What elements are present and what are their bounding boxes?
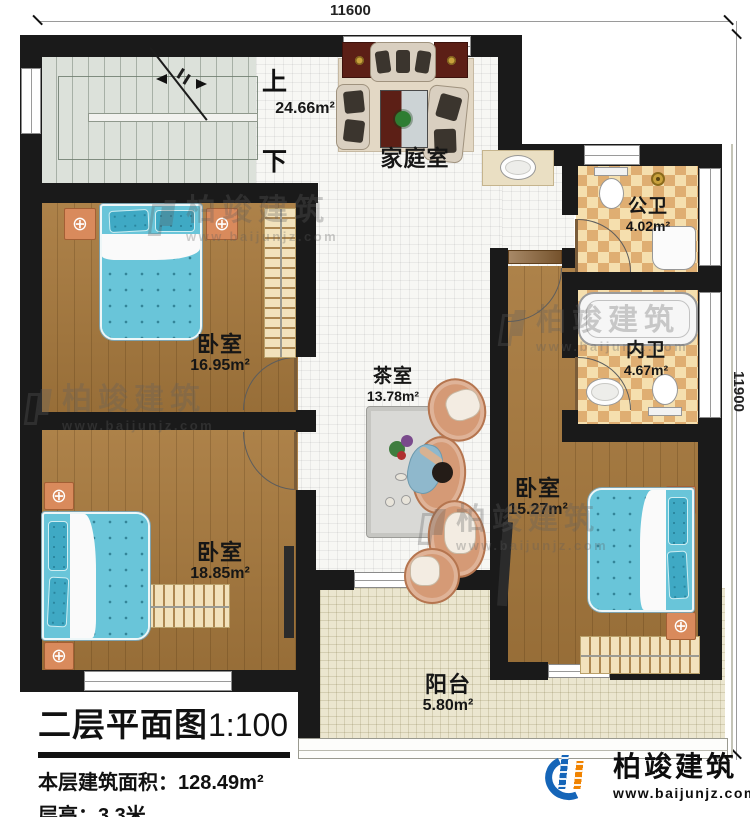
double-bed [42,512,150,640]
plan-scale: 1:100 [208,707,288,743]
family-room-label: 家庭室 [358,146,472,171]
top-dimension-line [38,21,730,22]
bench-cushion [410,556,440,586]
floor-height-label: 层高： [38,805,98,817]
wall [562,290,578,358]
room-area: 4.02m² [626,218,670,234]
room-area: 24.66m² [275,100,335,118]
plan-title: 二层平面图 [38,706,208,743]
door-leaf [294,432,297,490]
wall [20,183,318,203]
room-name: 卧室 [197,540,243,565]
wall [562,272,718,290]
door-leaf [575,357,578,410]
person-head [432,462,453,483]
door-leaf [575,219,578,272]
window [21,68,41,134]
double-bed [588,488,694,612]
family-room-area: 24.66m² [250,100,360,118]
table-decor [355,56,364,65]
wall [562,424,718,442]
room-name: 家庭室 [380,146,449,171]
floor-area-value: 128.49m² [178,772,264,794]
balcony-label: 阳台 5.80m² [388,672,508,716]
brand-building-icon [545,748,603,804]
stair-up-label: 上 [262,62,287,98]
room-area: 13.78m² [367,388,419,404]
bathtub [578,292,698,346]
bench-cushion [444,512,476,554]
room-area: 4.67m² [624,362,668,378]
room-area: 18.85m² [190,565,250,583]
tea-room-label: 茶室 13.78m² [338,366,448,404]
nightstand: ⊕ [64,208,96,240]
window [699,292,721,418]
top-dimension-value: 11600 [330,2,371,19]
nightstand: ⊕ [44,482,74,510]
washbasin [586,378,624,406]
side-table [434,42,468,78]
brand-name: 柏竣建筑 [613,753,750,781]
brand-logo: 柏竣建筑 www.baijunjz.com [545,748,750,804]
door-leaf [294,357,297,410]
wall [298,570,354,590]
room-name: 卧室 [515,476,561,501]
door-leaf [508,250,562,264]
nightstand: ⊕ [44,642,74,670]
room-area: 16.95m² [190,357,250,375]
public-bath-label: 公卫 4.02m² [598,196,698,234]
bedroom1-label: 卧室 16.95m² [155,332,285,376]
arrowhead-icon [196,79,207,89]
wall [298,588,320,740]
wall [296,410,316,432]
coffee-table [380,90,428,148]
stair-down-label: 下 [262,142,287,178]
nightstand: ⊕ [206,208,238,240]
title-block: 二层平面图1:100 本层建筑面积：128.49m² 层高：3.3米 [38,698,290,817]
brand-url: www.baijunjz.com [613,786,750,800]
window [699,168,721,266]
private-bath-label: 内卫 4.67m² [596,340,696,378]
bedroom3-label: 卧室 15.27m² [488,476,588,520]
eave-line [731,144,733,759]
floor-height-value: 3.3米 [98,805,146,817]
room-name: 卧室 [197,332,243,357]
floor-drain [651,172,665,186]
floor-plan-canvas: 11600 11900 [0,0,750,817]
room-name: 茶室 [373,366,413,388]
double-bed [100,204,202,340]
room-area: 15.27m² [508,501,568,519]
table-decor [447,56,456,65]
room-area: 5.80m² [423,697,474,715]
toilet-tank [648,407,682,416]
title-underline [38,752,290,758]
wall [562,162,578,215]
wall [296,183,316,357]
sofa [370,42,436,82]
room-name: 公卫 [628,196,668,218]
toilet [652,374,678,405]
washbasin [500,155,536,180]
wardrobe [580,636,700,674]
window [84,671,232,691]
window [584,145,640,165]
toilet-tank [594,167,628,176]
tv-panel [284,546,294,638]
floor-area-label: 本层建筑面积： [38,772,178,794]
arrowhead-icon [156,74,167,84]
room-name: 阳台 [425,672,471,697]
nightstand: ⊕ [666,612,696,640]
wall [562,410,578,424]
stair-rail [88,113,258,122]
bedroom2-label: 卧室 18.85m² [160,540,280,584]
room-name: 内卫 [626,340,666,362]
wall [20,412,296,430]
